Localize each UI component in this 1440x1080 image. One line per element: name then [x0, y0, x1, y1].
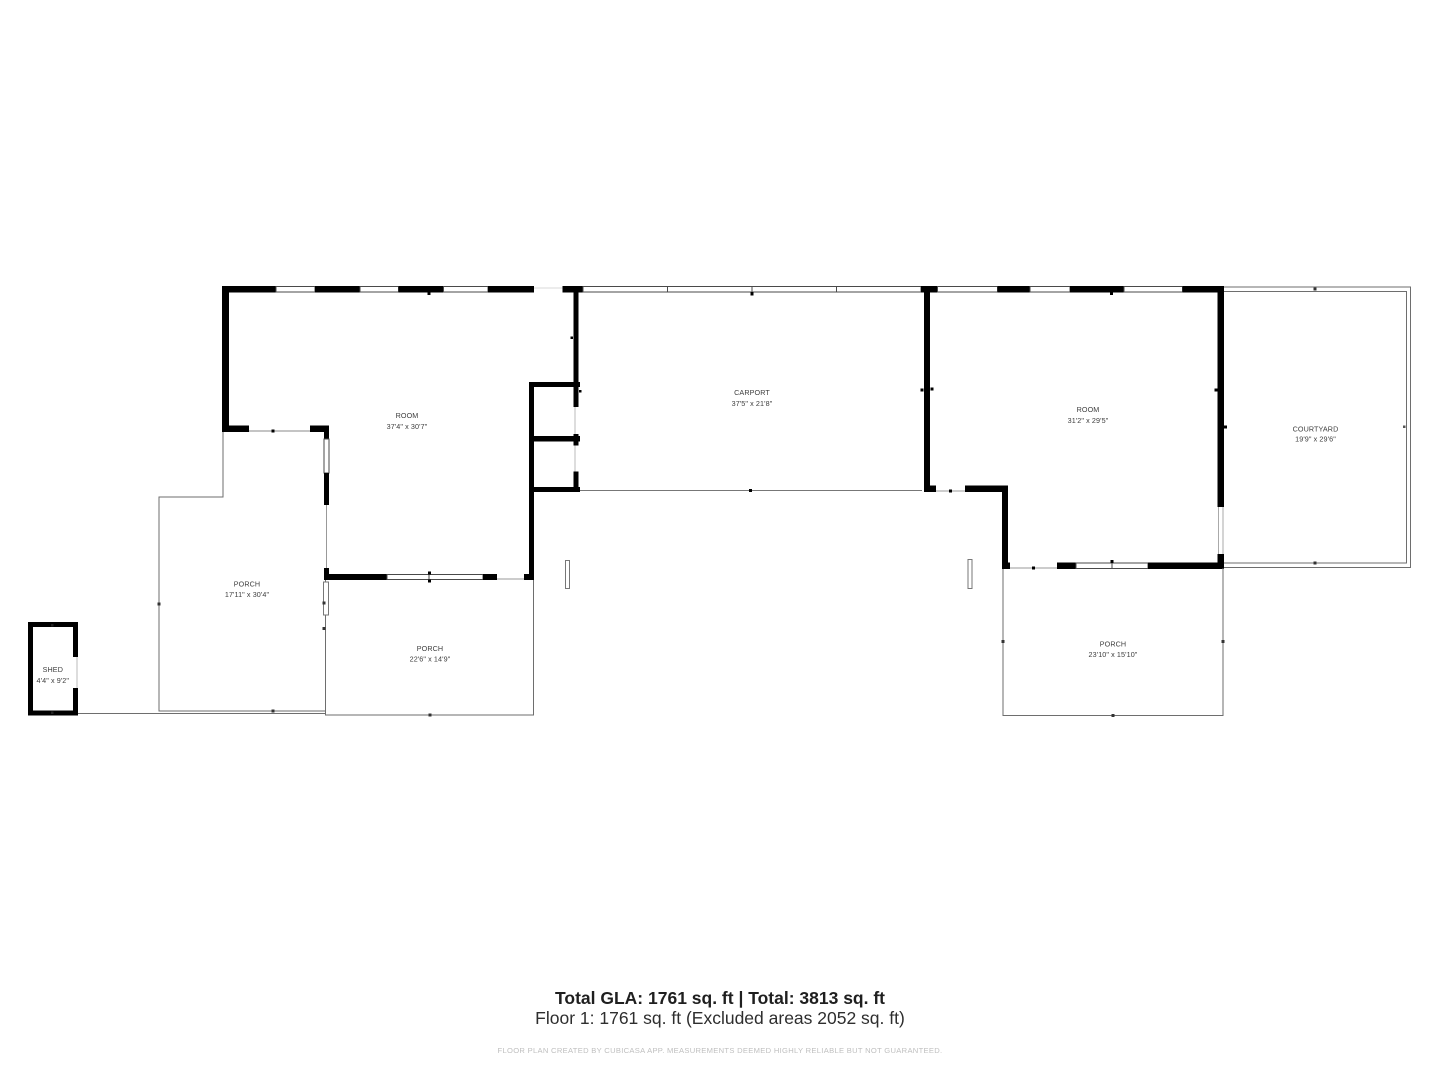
svg-text:4'4" x 9'2": 4'4" x 9'2"	[37, 676, 70, 685]
svg-text:COURTYARD: COURTYARD	[1293, 425, 1339, 434]
svg-text:PORCH: PORCH	[1100, 640, 1126, 649]
svg-text:ROOM: ROOM	[1077, 405, 1100, 414]
svg-text:31'2" x 29'5": 31'2" x 29'5"	[1068, 416, 1109, 425]
svg-text:17'11" x 30'4": 17'11" x 30'4"	[225, 590, 270, 599]
svg-text:Total GLA: 1761 sq. ft | Total: Total GLA: 1761 sq. ft | Total: 3813 sq.…	[555, 988, 885, 1008]
svg-text:SHED: SHED	[43, 665, 63, 674]
svg-text:ROOM: ROOM	[396, 411, 419, 420]
svg-text:PORCH: PORCH	[234, 579, 260, 588]
svg-text:19'9" x 29'6": 19'9" x 29'6"	[1295, 435, 1336, 444]
svg-text:23'10" x 15'10": 23'10" x 15'10"	[1089, 650, 1138, 659]
svg-text:CARPORT: CARPORT	[734, 388, 770, 397]
svg-text:PORCH: PORCH	[417, 644, 443, 653]
svg-text:22'6" x 14'9": 22'6" x 14'9"	[410, 655, 451, 664]
svg-text:FLOOR PLAN CREATED BY CUBICASA: FLOOR PLAN CREATED BY CUBICASA APP. MEAS…	[498, 1046, 943, 1055]
svg-text:37'5" x 21'8": 37'5" x 21'8"	[732, 399, 773, 408]
svg-text:37'4" x 30'7": 37'4" x 30'7"	[387, 422, 428, 431]
svg-text:Floor 1: 1761 sq. ft (Excluded: Floor 1: 1761 sq. ft (Excluded areas 205…	[535, 1008, 905, 1028]
